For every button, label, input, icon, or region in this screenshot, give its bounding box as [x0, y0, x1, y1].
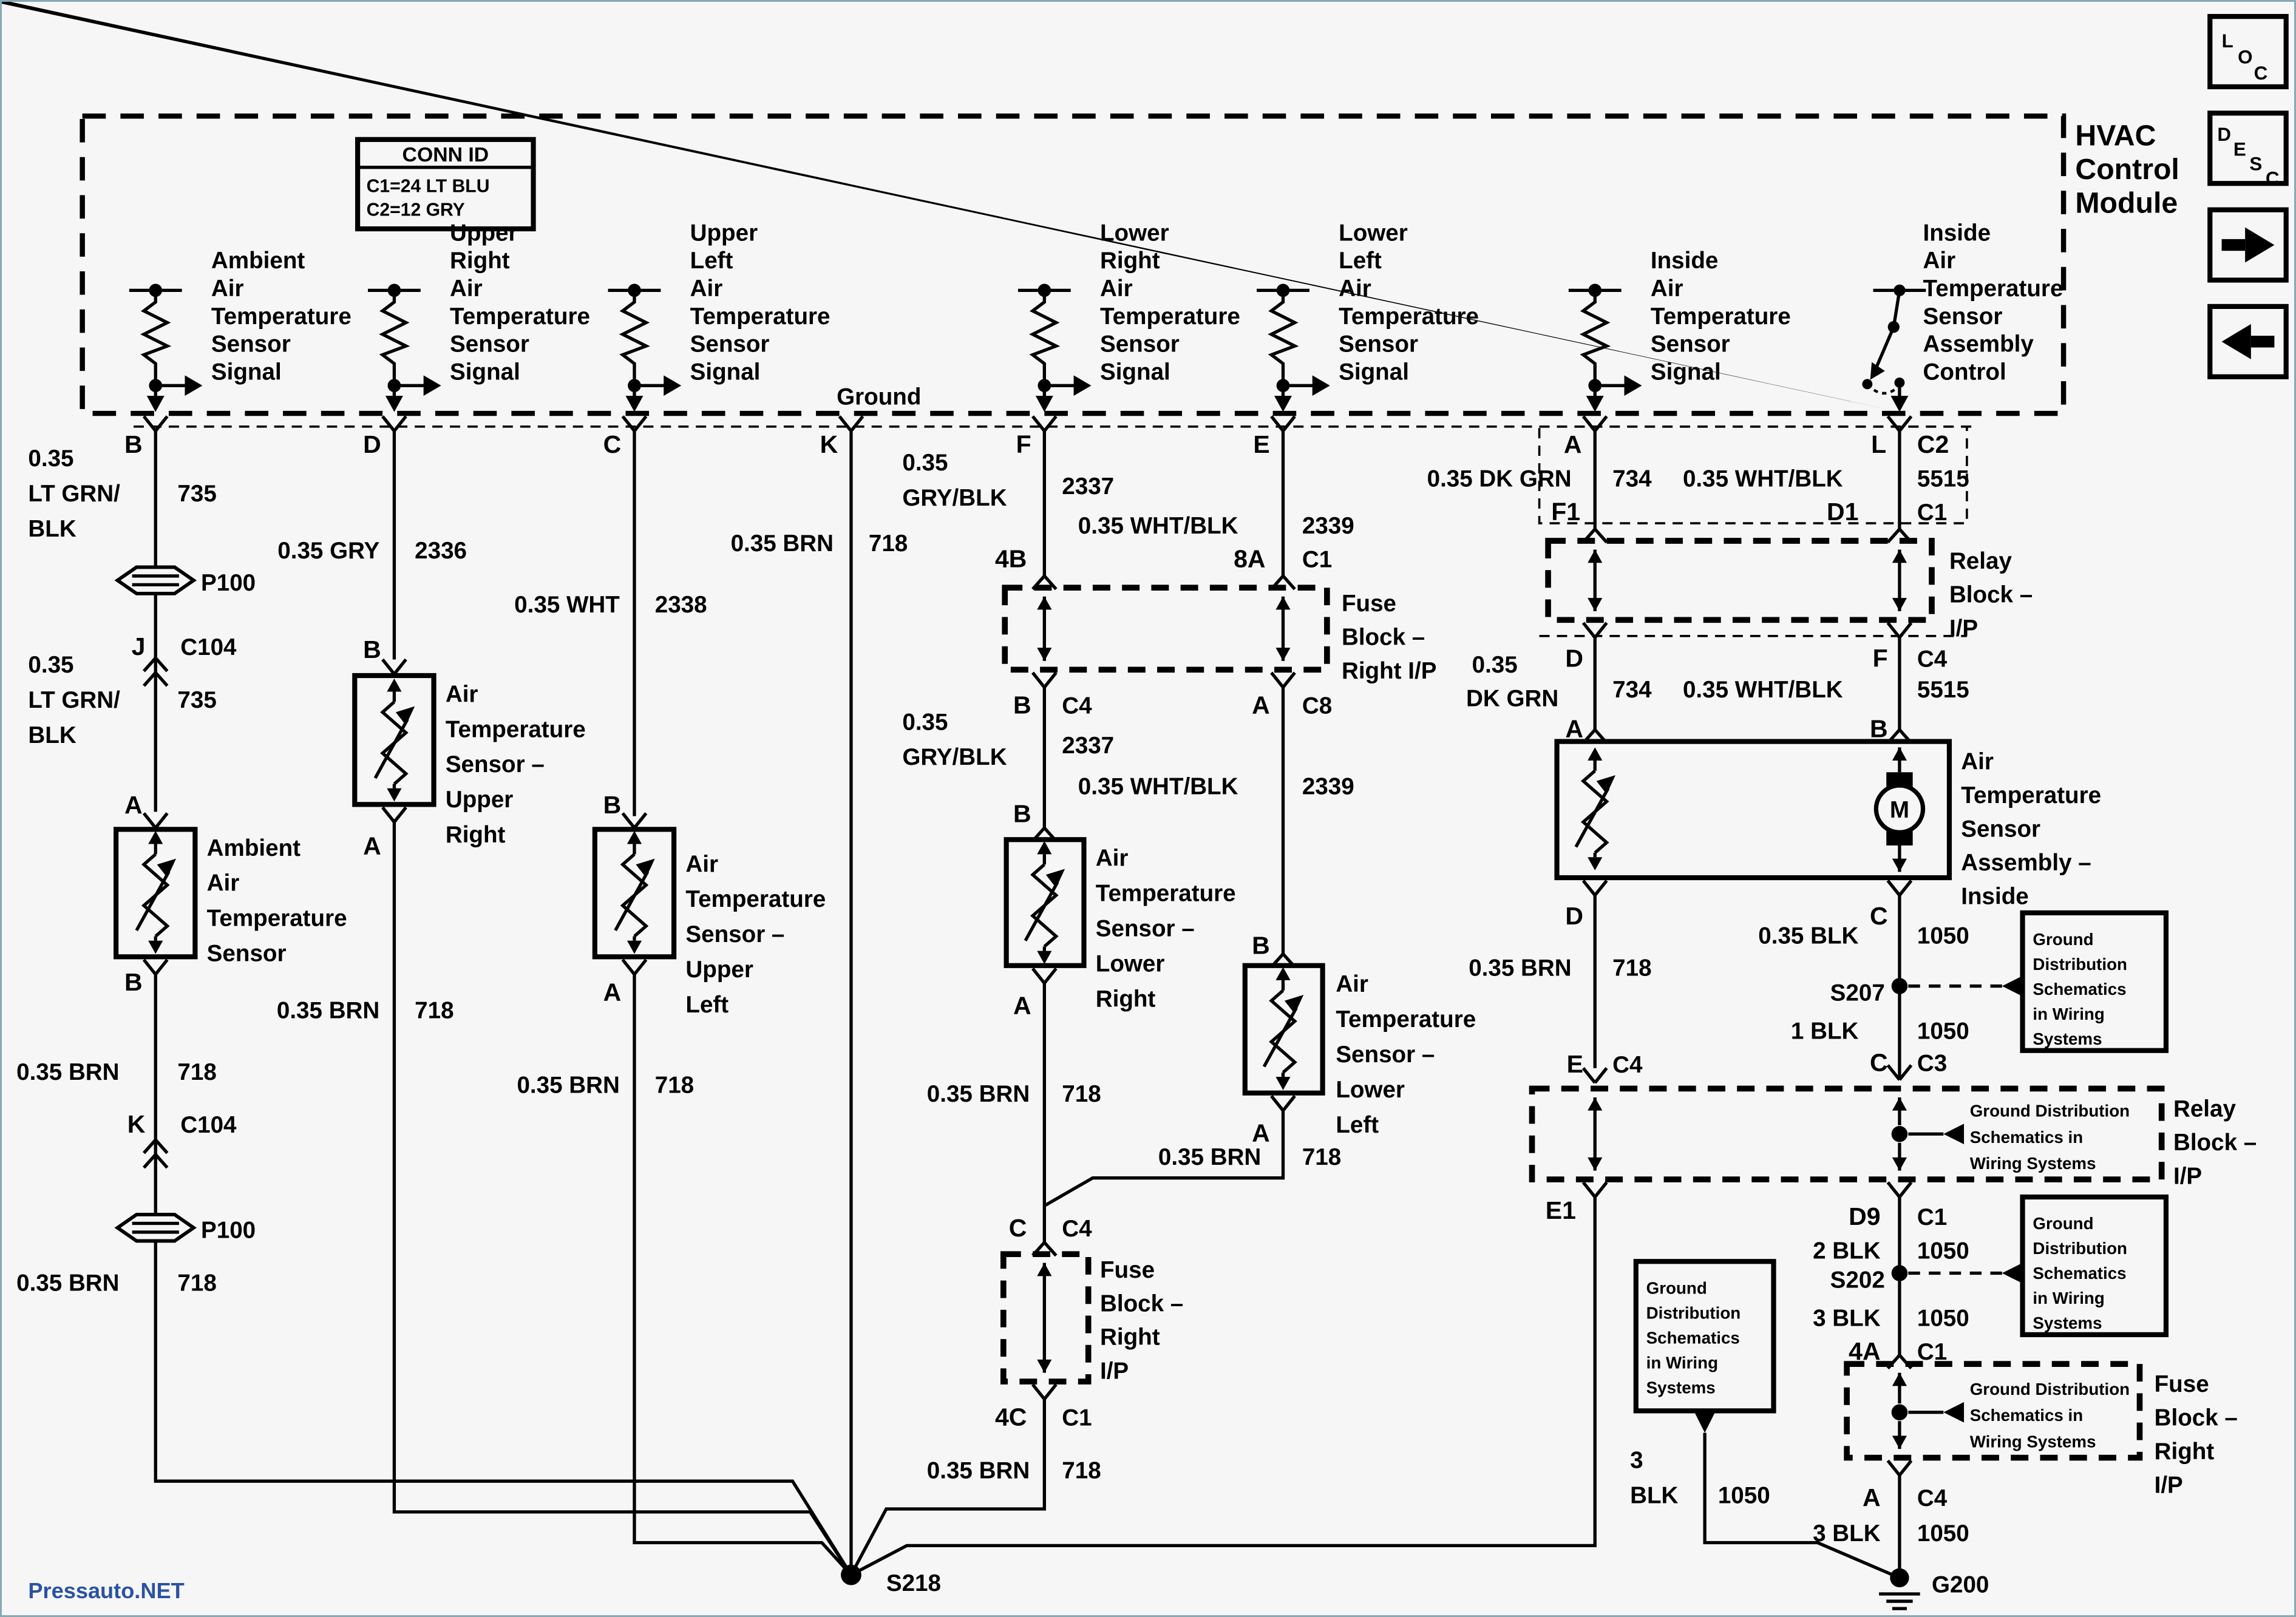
wire-color: 0.35 WHT/BLK [1683, 466, 1843, 492]
signal-label: Sensor [1339, 331, 1418, 358]
component-label: Sensor – [685, 921, 784, 947]
signal-lower-right: Lower Right Air Temperature Sensor Signa… [1018, 220, 1240, 412]
ground-distribution-box-3: Ground Distribution Schematics in Wiring… [1630, 1261, 1773, 1508]
conn-id-title: CONN ID [402, 143, 489, 166]
pin-letter: B [1252, 931, 1270, 959]
pin-letter: A [124, 791, 143, 819]
block-label: Relay [1949, 548, 2012, 574]
signal-label: Temperature [1923, 276, 2063, 302]
wire-color: 0.35 BRN [927, 1457, 1030, 1483]
note-text: Wiring Systems [1970, 1432, 2096, 1451]
wire-size: 0.35 [902, 450, 948, 476]
ground-distribution-box-2: Ground Distribution Schematics in Wiring… [2023, 1197, 2166, 1335]
signal-label: Signal [211, 359, 282, 385]
fuse-block-right-ip-mid: Fuse Block – Right I/P [1004, 1254, 1183, 1384]
splice-id: S207 [1830, 980, 1885, 1006]
signal-label: Signal [1339, 359, 1409, 385]
signal-label: Right [450, 248, 510, 274]
pin-letter: B [124, 968, 143, 996]
resistor-icon [1018, 284, 1092, 412]
note-text: Ground [2033, 930, 2093, 949]
loc-letter: O [2238, 46, 2252, 67]
pass-through-connector-icon [118, 567, 194, 593]
circuit-number: 718 [655, 1073, 694, 1099]
circuit-number: 718 [1302, 1144, 1341, 1170]
component-label: Air [1336, 971, 1368, 997]
pin-id: F1 [1551, 498, 1580, 526]
component-label: Right [1096, 986, 1156, 1012]
air-temp-sensor-assembly-inside: M Air Temperature Sensor Assembly – Insi… [1557, 742, 2102, 931]
signal-label: Air [211, 276, 244, 302]
note-text: Systems [2033, 1029, 2102, 1048]
pin-letter: D [1565, 902, 1583, 930]
signal-label: Air [1651, 276, 1683, 302]
motor-letter: M [1890, 797, 1909, 823]
circuit-number: 734 [1612, 677, 1652, 703]
module-title-line: Control [2075, 153, 2179, 186]
note-text: Systems [2033, 1314, 2102, 1332]
component-label: Air [1961, 748, 1994, 775]
block-label: Block – [2173, 1130, 2257, 1156]
pin-letter: E [1567, 1050, 1583, 1078]
desc-letter: E [2233, 138, 2246, 160]
ground-distribution-box-1: Ground Distribution Schematics in Wiring… [2023, 913, 2166, 1051]
signal-label: Sensor [1651, 331, 1730, 358]
column-ambient: 0.35 LT GRN/ BLK 735 P100 J C104 0.35 LT… [16, 446, 347, 1297]
wire-size: 0.35 [902, 709, 948, 735]
conn-id-row: C2=12 GRY [367, 200, 465, 220]
thermistor-icon [137, 831, 176, 954]
note-text: Distribution [1646, 1303, 1741, 1322]
connector-id: C1 [1917, 1204, 1947, 1230]
circuit-number: 2336 [415, 538, 467, 564]
connector-id: C4 [1917, 646, 1948, 673]
pin-letter: B [124, 430, 143, 458]
circuit-number: 735 [177, 481, 216, 507]
wire-color: 0.35 BRN [731, 531, 834, 557]
wire-size: 0.35 [28, 652, 73, 678]
next-page-button[interactable] [2210, 210, 2286, 280]
pin-letter: A [363, 832, 381, 859]
pin-letter: K [820, 430, 838, 458]
circuit-number: 2338 [655, 592, 707, 618]
splice-s218: S218 [841, 1565, 941, 1596]
fuse-block-right-ip-lower: Ground Distribution Schematics in Wiring… [1813, 1364, 2238, 1547]
connector-id: C4 [1062, 1216, 1092, 1242]
signal-label: Temperature [690, 303, 830, 330]
component-label: Temperature [446, 716, 586, 742]
pin-id: D1 [1827, 498, 1858, 526]
circuit-number: 1050 [1718, 1482, 1770, 1508]
wire-size: 0.35 [1472, 652, 1518, 678]
desc-letter: C [2266, 168, 2280, 189]
circuit-number: 2339 [1302, 773, 1354, 799]
wire-color: 2 BLK [1813, 1238, 1881, 1264]
hvac-wiring-schematic: HVAC Control Module CONN ID C1=24 LT BLU… [2, 2, 2296, 1617]
conn-id-row: C1=24 LT BLU [367, 177, 490, 197]
ground-id: G200 [1932, 1572, 1989, 1598]
block-label: I/P [2155, 1472, 2183, 1498]
block-label: Relay [2173, 1096, 2236, 1122]
connector-id: P100 [201, 1218, 256, 1244]
block-label: Fuse [1100, 1257, 1155, 1283]
wire-color: 0.35 DK GRN [1427, 466, 1572, 492]
signal-label: Temperature [450, 303, 590, 330]
wire-color: 0.35 GRY [277, 538, 379, 564]
column-ground: 0.35 BRN 718 [731, 531, 908, 557]
resistor-icon [129, 284, 203, 412]
circuit-number: 718 [415, 998, 453, 1024]
note-text: Distribution [2033, 1239, 2127, 1258]
block-label: Right [1100, 1324, 1160, 1351]
wire-color: 0.35 WHT [514, 592, 620, 618]
thermistor-icon [375, 679, 415, 802]
watermark: Pressauto.NET [28, 1578, 184, 1603]
splice-id: S202 [1830, 1267, 1885, 1293]
block-label: I/P [2173, 1163, 2202, 1189]
signal-upper-right: Upper Right Air Temperature Sensor Signa… [368, 220, 590, 412]
signal-inside: Inside Air Temperature Sensor Signal [1569, 248, 1791, 412]
circuit-number: 5515 [1917, 466, 1969, 492]
pin-letter: C [1870, 1049, 1888, 1077]
circuit-number: 5515 [1917, 677, 1969, 703]
signal-label: Temperature [1100, 303, 1240, 330]
signal-label: Signal [450, 359, 520, 385]
relay-block-ip-upper: Relay Block – I/P [1548, 541, 2033, 642]
resistor-icon [368, 284, 441, 412]
component-label: Ambient [207, 835, 301, 861]
signal-label: Left [690, 248, 733, 274]
signal-label: Temperature [211, 303, 352, 330]
component-label: Assembly – [1961, 850, 2091, 876]
ground-g200: G200 [1879, 1568, 1989, 1609]
wire-color: 0.35 BRN [1158, 1144, 1261, 1170]
component-label: Inside [1961, 883, 2029, 909]
component-label: Left [685, 992, 729, 1018]
note-text: Schematics [2033, 1264, 2126, 1283]
signal-label: Control [1923, 359, 2006, 385]
signal-label: Air [450, 276, 483, 302]
pin-letter: K [127, 1110, 146, 1138]
circuit-number: 2339 [1302, 513, 1354, 539]
pin-letter: A [1863, 1483, 1881, 1511]
pin-letter: C [1009, 1214, 1027, 1242]
note-text: Ground [2033, 1214, 2093, 1233]
note-text: in Wiring [2033, 1289, 2104, 1307]
wire-color: 0.35 BRN [277, 998, 379, 1024]
signal-label: Sensor [690, 331, 770, 358]
note-text: in Wiring [2033, 1005, 2104, 1023]
block-label: Block – [1100, 1290, 1183, 1317]
desc-letter: D [2217, 124, 2231, 145]
relay-exit-row: D F C4 0.35 DK GRN 734 0.35 WHT/BLK 5515… [1466, 623, 1969, 743]
circuit-number: 1050 [1917, 1305, 1969, 1331]
pin-letter: F [1873, 645, 1888, 673]
wire-color: 0.35 BRN [1469, 955, 1571, 981]
pin-letter: B [1013, 691, 1031, 719]
wire-color: GRY/BLK [902, 485, 1007, 511]
wire-color: 3 BLK [1813, 1520, 1881, 1547]
component-label: Lower [1336, 1077, 1405, 1103]
block-label: Fuse [1342, 591, 1396, 617]
block-label: I/P [1100, 1358, 1129, 1384]
pin-letter: C [1870, 902, 1888, 930]
component-label: Sensor [1961, 816, 2040, 842]
connector-id: C1 [1917, 500, 1947, 526]
component-label: Sensor – [446, 751, 545, 778]
wire-color: 0.35 BRN [16, 1059, 119, 1085]
component-label: Sensor – [1096, 916, 1195, 942]
component-label: Temperature [685, 886, 826, 912]
signal-ambient: Ambient Air Temperature Sensor Signal [129, 248, 352, 412]
component-label: Temperature [1336, 1006, 1476, 1032]
note-text: in Wiring [1646, 1353, 1718, 1372]
note-text: Distribution [2033, 955, 2127, 974]
circuit-number: 1050 [1917, 923, 1969, 949]
signal-label: Lower [1339, 220, 1408, 246]
connector-id: C3 [1917, 1051, 1947, 1077]
component-label: Left [1336, 1112, 1379, 1138]
signal-label: Right [1100, 248, 1160, 274]
connector-id: C8 [1302, 693, 1332, 719]
column-control-ground-2: D9 C1 2 BLK 1050 S202 3 BLK 1050 4A C1 [1813, 1202, 2022, 1368]
wire-color: BLK [28, 516, 76, 542]
wire-size: 0.35 [28, 446, 73, 472]
connector-id: C1 [1062, 1405, 1092, 1431]
wire-color: BLK [28, 722, 76, 748]
pin-letter: A [603, 978, 622, 1006]
pin-letter: C [603, 430, 622, 458]
component-label: Temperature [1096, 881, 1236, 907]
signal-label: Air [690, 276, 723, 302]
pin-letter: F [1016, 430, 1031, 458]
component-label: Lower [1096, 951, 1165, 977]
module-pins: B D C K F E A L C2 [124, 416, 1949, 458]
signal-label: Sensor [450, 331, 529, 358]
circuit-number: 1050 [1917, 1018, 1969, 1044]
signal-label: Assembly [1923, 331, 2034, 358]
thermistor-icon [1576, 747, 1615, 870]
pin-letter: A [1013, 991, 1031, 1019]
pin-connector: C2 [1917, 430, 1949, 458]
column-inside-signal: 0.35 DK GRN 734 0.35 WHT/BLK 5515 F1 D1 … [1427, 427, 1969, 543]
pin-id: 4B [995, 544, 1027, 572]
wire-color: 0.35 WHT/BLK [1078, 513, 1238, 539]
pin-letter: D [1565, 645, 1583, 673]
module-title-line: Module [2075, 186, 2178, 219]
conn-id-legend: CONN ID C1=24 LT BLU C2=12 GRY [358, 140, 533, 229]
pin-letter: A [1252, 1119, 1270, 1147]
splice-id: S218 [886, 1570, 941, 1596]
signal-label: Sensor [1100, 331, 1180, 358]
component-label: Upper [685, 957, 753, 983]
pin-id: 4A [1849, 1337, 1880, 1365]
signal-label: Left [1339, 248, 1382, 274]
connector-id: C104 [180, 634, 237, 660]
column-control-ground: 0.35 BLK 1050 S207 1 BLK 1050 C C3 [1758, 923, 2022, 1080]
wire-color: LT GRN/ [28, 481, 120, 507]
module-title-line: HVAC [2075, 119, 2156, 152]
wire-color: BLK [1630, 1482, 1678, 1508]
signal-label: Air [1100, 276, 1133, 302]
circuit-number: 2337 [1062, 733, 1114, 759]
connector-id: P100 [201, 570, 256, 596]
component-label: Air [1096, 846, 1129, 872]
circuit-number: 718 [1062, 1457, 1101, 1483]
desc-button[interactable]: D E S C [2210, 113, 2286, 189]
signal-label: Upper [690, 220, 758, 246]
resistor-icon [1569, 284, 1642, 412]
wire-color: 0.35 BRN [16, 1270, 119, 1296]
fuse-block-right-ip-upper: Fuse Block – Right I/P [1005, 588, 1436, 684]
block-label: Right I/P [1342, 658, 1436, 684]
wire-color: 0.35 WHT/BLK [1078, 773, 1238, 799]
component-label: Sensor – [1336, 1042, 1435, 1068]
pin-letter: A [1564, 430, 1582, 458]
component-label: Right [446, 822, 506, 848]
pin-letter: A [1252, 691, 1270, 719]
signal-lower-left: Lower Left Air Temperature Sensor Signal [1257, 220, 1479, 412]
pin-letter: L [1871, 430, 1886, 458]
connector-id: C4 [1917, 1485, 1948, 1511]
signal-label: Air [1339, 276, 1371, 302]
connector-id: C4 [1062, 693, 1092, 719]
component-label: Air [207, 870, 240, 897]
circuit-number: 718 [177, 1270, 216, 1296]
wire-color: 1 BLK [1791, 1018, 1859, 1044]
signal-upper-left: Upper Left Air Temperature Sensor Signal [608, 220, 830, 412]
signal-label: Air [1923, 248, 1956, 274]
wire-size: 3 [1630, 1447, 1643, 1473]
component-label: Air [446, 681, 478, 707]
pin-id: E1 [1546, 1196, 1576, 1224]
note-text: Ground Distribution [1970, 1101, 2130, 1120]
loc-letter: C [2254, 63, 2268, 84]
signal-label: Signal [1651, 359, 1721, 385]
nav-buttons: L O C D E S C [2210, 16, 2286, 377]
component-label: Temperature [207, 906, 347, 932]
wire-color: 3 BLK [1813, 1305, 1881, 1331]
connector-id: C4 [1612, 1052, 1643, 1078]
loc-button[interactable]: L O C [2210, 16, 2286, 87]
component-label: Sensor [207, 941, 287, 967]
note-text: Wiring Systems [1970, 1154, 2096, 1173]
circuit-number: 734 [1612, 466, 1652, 492]
desc-letter: S [2249, 153, 2262, 174]
signal-label: Inside [1923, 220, 1991, 246]
signal-label: Inside [1651, 248, 1719, 274]
component-label: Air [685, 851, 718, 877]
block-label: Block – [2155, 1405, 2238, 1431]
note-text: Ground [1646, 1278, 1707, 1297]
relay-block-ip-lower: Ground Distribution Schematics in Wiring… [1532, 1088, 2257, 1197]
motor-icon: M [1876, 747, 1923, 872]
pass-through-connector-icon [118, 1215, 194, 1241]
signal-label: Upper [450, 220, 517, 246]
pin-letter: E [1253, 430, 1269, 458]
signal-label: Ambient [211, 248, 305, 274]
note-text: Systems [1646, 1378, 1716, 1397]
pin-letter: B [603, 791, 622, 819]
signal-label: Signal [690, 359, 761, 385]
circuit-number: 735 [177, 687, 216, 713]
block-label: Block – [1342, 624, 1425, 650]
column-lower-left: 0.35 WHT/BLK 2339 8A C1 A C8 0.35 WHT/BL… [1078, 513, 1476, 1170]
wire-color: 0.35 BLK [1758, 923, 1858, 949]
pin-letter: J [132, 632, 146, 660]
circuit-number: 2337 [1062, 473, 1114, 500]
column-lower-right: 0.35 GRY/BLK 2337 4B B C4 0.35 GRY/BLK 2… [902, 450, 1235, 1483]
pin-id: D9 [1849, 1202, 1880, 1230]
connector-id: C1 [1302, 546, 1332, 572]
block-label: I/P [1949, 615, 1978, 642]
note-text: Schematics [1646, 1328, 1740, 1347]
loc-letter: L [2222, 30, 2233, 52]
wire-color: GRY/BLK [902, 744, 1007, 770]
component-label: Temperature [1961, 782, 2101, 808]
resistor-icon [608, 284, 682, 412]
pin-letter: D [363, 430, 381, 458]
wire-color: 0.35 BRN [927, 1081, 1030, 1107]
wiring-diagram-page: HVAC Control Module CONN ID C1=24 LT BLU… [0, 0, 2296, 1617]
prev-page-button[interactable] [2210, 307, 2286, 377]
circuit-number: 1050 [1917, 1520, 1969, 1547]
circuit-number: 718 [1612, 955, 1651, 981]
connector-id: C104 [180, 1112, 237, 1138]
note-text: Schematics in [1970, 1128, 2083, 1147]
ground-label: Ground [837, 384, 921, 410]
signal-label: Sensor [1923, 303, 2003, 330]
signal-assembly-control: Inside Air Temperature Sensor Assembly C… [2, 2, 2063, 412]
note-text: Schematics [2033, 980, 2126, 998]
pin-id: 8A [1234, 544, 1265, 572]
signal-label: Temperature [1651, 303, 1791, 330]
circuit-number: 718 [869, 531, 908, 557]
thermistor-icon [616, 831, 655, 954]
pin-letter: B [1013, 799, 1031, 827]
pin-letter: A [1565, 714, 1583, 742]
component-label: Upper [446, 787, 513, 813]
circuit-number: 718 [177, 1059, 216, 1085]
signal-label: Signal [1100, 359, 1170, 385]
wire-color: 0.35 BRN [517, 1073, 619, 1099]
note-text: Schematics in [1970, 1406, 2083, 1425]
block-label: Fuse [2155, 1371, 2209, 1397]
block-label: Right [2155, 1439, 2215, 1465]
circuit-number: 1050 [1917, 1238, 1969, 1264]
block-label: Block – [1949, 581, 2033, 608]
wire-color: 0.35 WHT/BLK [1683, 677, 1843, 703]
resistor-icon [1257, 284, 1330, 412]
pin-letter: B [1870, 714, 1888, 742]
pin-letter: B [363, 636, 381, 663]
signal-label: Sensor [211, 331, 291, 358]
circuit-number: 718 [1062, 1081, 1101, 1107]
column-upper-left: 0.35 WHT 2338 B Air Temperature Sensor –… [514, 592, 826, 1098]
wire-color: DK GRN [1466, 686, 1558, 712]
thermistor-icon [1025, 841, 1065, 964]
note-text: Ground Distribution [1970, 1380, 2130, 1398]
wire-color: LT GRN/ [28, 687, 120, 713]
pin-id: 4C [995, 1403, 1027, 1431]
thermistor-icon [1264, 967, 1303, 1090]
